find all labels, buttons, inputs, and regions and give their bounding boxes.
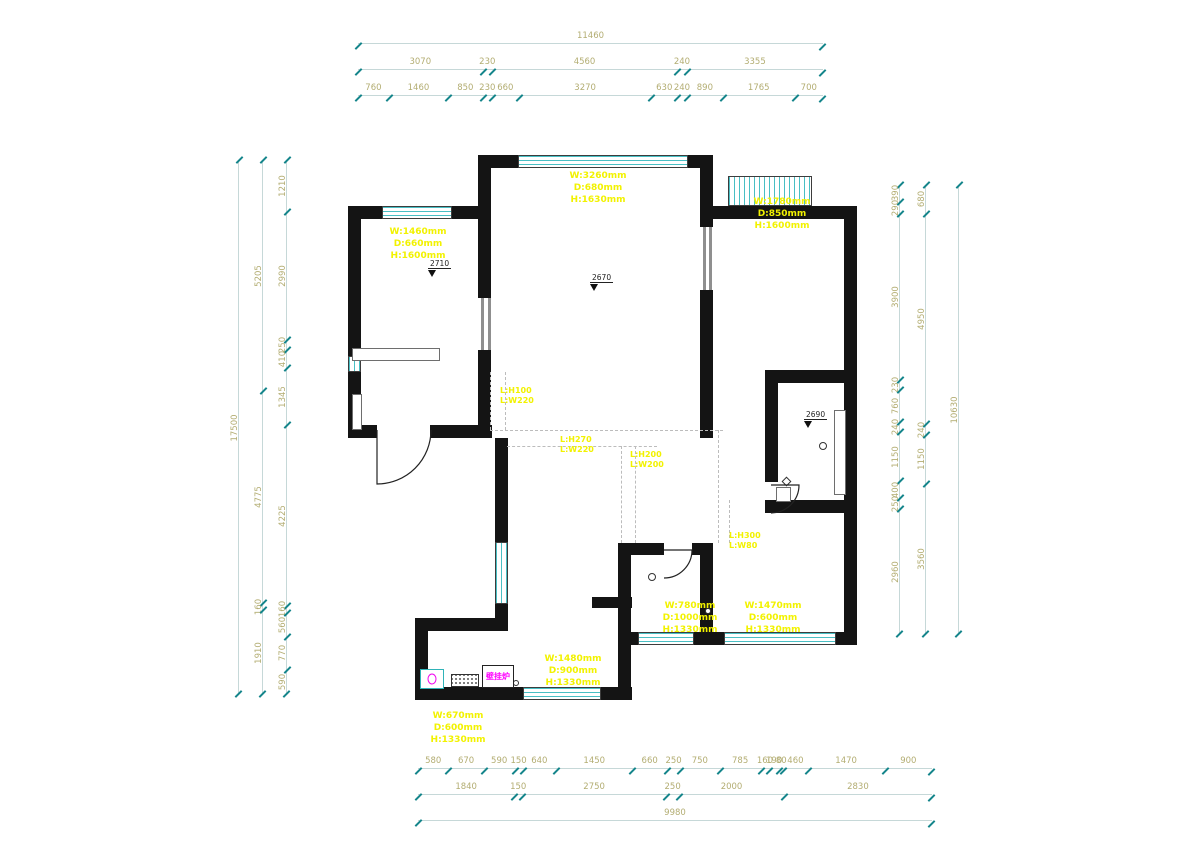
cad-canvas[interactable]: W:1460mmD:660mmH:1600mmW:3260mmD:680mmH:… [0, 0, 1200, 851]
dimension-segment: 590 [286, 670, 300, 695]
dimension-segment: 2750 [522, 781, 666, 795]
dimension-segment: 2990 [286, 212, 300, 340]
dimension-segment: 2000 [679, 781, 784, 795]
dimension-label: 1765 [748, 83, 770, 93]
dimension-label: 4225 [278, 505, 288, 527]
dimension-label: 1210 [278, 175, 288, 197]
dimension-annotations: 1146030702304560240335576014608502306603… [0, 0, 1200, 851]
dimension-segment: 17500 [238, 160, 252, 695]
dimension-line: 1210299025041013454225160560770590 [286, 160, 300, 695]
dimension-segment: 1150 [925, 435, 939, 484]
dimension-label: 590 [491, 756, 507, 766]
dimension-segment: 760 [899, 390, 913, 422]
dimension-label: 11460 [577, 31, 604, 41]
dimension-label: 1150 [891, 446, 901, 468]
dimension-line: 307023045602403355 [358, 56, 823, 70]
dimension-segment: 1450 [556, 755, 632, 769]
dimension-label: 1150 [917, 448, 927, 470]
dimension-segment: 4560 [492, 56, 677, 70]
dimension-segment: 150 [514, 781, 522, 795]
dimension-segment: 850 [448, 82, 483, 96]
dimension-label: 10630 [950, 396, 960, 423]
dimension-label: 660 [497, 83, 513, 93]
dimension-segment: 785 [720, 755, 761, 769]
dimension-label: 1910 [254, 642, 264, 664]
dimension-segment: 890 [687, 82, 723, 96]
dimension-label: 750 [692, 756, 708, 766]
dimension-segment: 900 [885, 755, 932, 769]
dimension-segment: 580 [418, 755, 448, 769]
dimension-line: 9980 [418, 807, 932, 821]
dimension-label: 590 [278, 674, 288, 690]
dimension-segment: 660 [632, 755, 667, 769]
dimension-label: 2830 [847, 782, 869, 792]
dimension-segment: 3900 [899, 214, 913, 380]
dimension-segment: 2830 [784, 781, 932, 795]
dimension-label: 680 [917, 191, 927, 207]
dimension-label: 640 [531, 756, 547, 766]
dimension-label: 2750 [583, 782, 605, 792]
dimension-segment: 3070 [358, 56, 483, 70]
dimension-label: 3560 [917, 548, 927, 570]
dimension-segment: 770 [286, 637, 300, 670]
dimension-label: 17500 [230, 414, 240, 441]
dimension-segment: 250 [666, 781, 679, 795]
dimension-segment: 640 [523, 755, 557, 769]
dimension-segment: 150 [515, 755, 523, 769]
dimension-label: 580 [425, 756, 441, 766]
dimension-segment: 4775 [262, 391, 276, 603]
dimension-label: 630 [656, 83, 672, 93]
dimension-segment: 1470 [808, 755, 885, 769]
dimension-segment: 1840 [418, 781, 514, 795]
dimension-segment: 230 [483, 82, 492, 96]
dimension-segment: 1765 [723, 82, 795, 96]
dimension-line: 760146085023066032706302408901765700 [358, 82, 823, 96]
dimension-segment: 240 [677, 82, 687, 96]
dimension-segment: 1460 [389, 82, 448, 96]
dimension-label: 2960 [891, 561, 901, 583]
dimension-label: 2000 [721, 782, 743, 792]
dimension-line: 680495024011503560 [925, 185, 939, 635]
dimension-label: 670 [458, 756, 474, 766]
dimension-segment: 660 [492, 82, 519, 96]
dimension-segment: 2960 [899, 509, 913, 635]
dimension-segment: 680 [925, 185, 939, 214]
dimension-line: 17500 [238, 160, 252, 695]
dimension-label: 3070 [409, 57, 431, 67]
dimension-label: 760 [891, 398, 901, 414]
dimension-label: 4950 [917, 308, 927, 330]
dimension-label: 3355 [744, 57, 766, 67]
dimension-line: 10630 [958, 185, 972, 635]
dimension-line: 11460 [358, 30, 823, 44]
dimension-segment: 3270 [519, 82, 652, 96]
dimension-segment: 700 [795, 82, 823, 96]
dimension-segment: 3355 [687, 56, 823, 70]
dimension-segment: 250 [667, 755, 680, 769]
dimension-line: 5806705901506401450660250750785160190804… [418, 755, 932, 769]
dimension-line: 520547751601910 [262, 160, 276, 695]
dimension-segment: 1345 [286, 368, 300, 426]
dimension-label: 4560 [574, 57, 596, 67]
dimension-label: 700 [801, 83, 817, 93]
dimension-segment: 1150 [899, 432, 913, 481]
dimension-label: 3900 [891, 286, 901, 308]
dimension-label: 410 [278, 351, 288, 367]
dimension-label: 9980 [664, 808, 686, 818]
dimension-label: 1840 [455, 782, 477, 792]
dimension-segment: 9980 [418, 807, 932, 821]
dimension-segment: 230 [483, 56, 492, 70]
dimension-label: 3270 [574, 83, 596, 93]
dimension-segment: 670 [448, 755, 483, 769]
dimension-line: 1840150275025020002830 [418, 781, 932, 795]
dimension-label: 4775 [254, 486, 264, 508]
dimension-segment: 760 [358, 82, 389, 96]
dimension-label: 5205 [254, 265, 264, 287]
dimension-label: 1460 [408, 83, 430, 93]
dimension-label: 660 [642, 756, 658, 766]
dimension-segment: 3560 [925, 484, 939, 635]
dimension-segment: 460 [783, 755, 807, 769]
dimension-label: 1450 [583, 756, 605, 766]
dimension-label: 2990 [278, 265, 288, 287]
dimension-label: 785 [732, 756, 748, 766]
dimension-label: 770 [278, 645, 288, 661]
dimension-segment: 750 [680, 755, 719, 769]
dimension-segment: 10630 [958, 185, 972, 635]
dimension-segment: 5205 [262, 160, 276, 391]
dimension-label: 560 [278, 617, 288, 633]
dimension-label: 460 [787, 756, 803, 766]
dimension-segment: 240 [677, 56, 687, 70]
dimension-line: 390290390023076024011504002502960 [899, 185, 913, 635]
dimension-label: 890 [697, 83, 713, 93]
dimension-segment: 4225 [286, 425, 300, 606]
dimension-label: 850 [457, 83, 473, 93]
dimension-label: 900 [900, 756, 916, 766]
dimension-segment: 11460 [358, 30, 823, 44]
dimension-label: 760 [365, 83, 381, 93]
dimension-segment: 4950 [925, 214, 939, 425]
dimension-segment: 1910 [262, 610, 276, 695]
dimension-segment: 1210 [286, 160, 300, 212]
dimension-label: 1345 [278, 386, 288, 408]
dimension-label: 1470 [835, 756, 857, 766]
